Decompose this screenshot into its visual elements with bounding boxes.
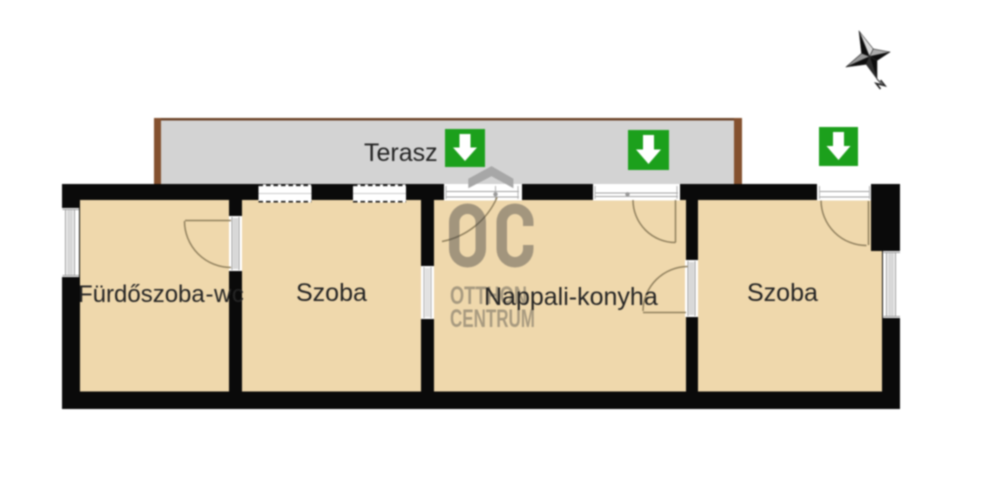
svg-text:Szoba: Szoba <box>296 279 367 307</box>
svg-text:Terasz: Terasz <box>364 139 438 167</box>
svg-text:Nappali-konyha: Nappali-konyha <box>484 283 658 311</box>
svg-text:Fürdőszoba: Fürdőszoba <box>78 281 205 308</box>
svg-text:-wc: -wc <box>206 281 245 308</box>
svg-text:Szoba: Szoba <box>747 279 818 307</box>
